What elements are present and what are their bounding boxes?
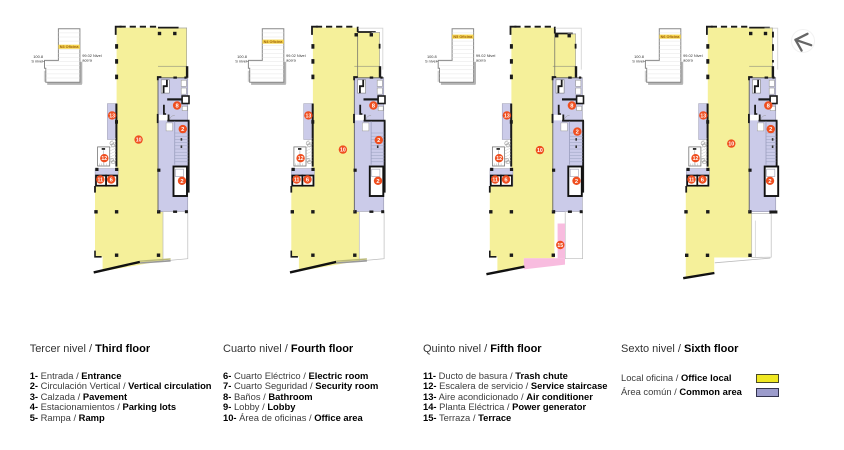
svg-text:10: 10 [136, 138, 142, 144]
svg-text:acera: acera [476, 57, 487, 62]
svg-text:S nivel: S nivel [235, 59, 247, 64]
svg-text:11: 11 [492, 177, 498, 183]
svg-text:15: 15 [557, 243, 563, 249]
svg-text:13: 13 [504, 113, 510, 119]
svg-text:11: 11 [689, 177, 695, 183]
svg-text:12: 12 [693, 156, 699, 162]
svg-text:10: 10 [340, 148, 346, 154]
svg-text:12: 12 [298, 156, 304, 162]
svg-text:2: 2 [377, 138, 380, 144]
svg-text:10: 10 [728, 142, 734, 148]
svg-text:2: 2 [576, 130, 579, 136]
svg-text:S nivel: S nivel [632, 59, 644, 64]
svg-text:2: 2 [180, 179, 183, 185]
svg-text:2: 2 [181, 127, 184, 133]
svg-text:acera: acera [286, 57, 297, 62]
svg-text:2: 2 [768, 179, 771, 185]
svg-text:N3 Oficina: N3 Oficina [60, 45, 80, 49]
svg-text:S nivel: S nivel [31, 59, 43, 64]
svg-text:13: 13 [306, 113, 312, 119]
svg-text:2: 2 [376, 179, 379, 185]
svg-text:11: 11 [294, 177, 300, 183]
svg-text:2: 2 [575, 179, 578, 185]
svg-text:N6 Oficina: N6 Oficina [661, 35, 681, 39]
svg-text:13: 13 [700, 113, 706, 119]
svg-text:S nivel: S nivel [425, 59, 437, 64]
svg-text:acera: acera [683, 57, 694, 62]
svg-text:N4 Oficina: N4 Oficina [264, 40, 284, 44]
svg-text:13: 13 [109, 113, 115, 119]
svg-text:11: 11 [98, 177, 104, 183]
svg-text:acera: acera [82, 57, 93, 62]
svg-text:10: 10 [537, 148, 543, 154]
svg-text:12: 12 [101, 156, 107, 162]
svg-text:12: 12 [496, 156, 502, 162]
svg-text:2: 2 [769, 127, 772, 133]
svg-text:N5 Oficina: N5 Oficina [453, 35, 473, 39]
